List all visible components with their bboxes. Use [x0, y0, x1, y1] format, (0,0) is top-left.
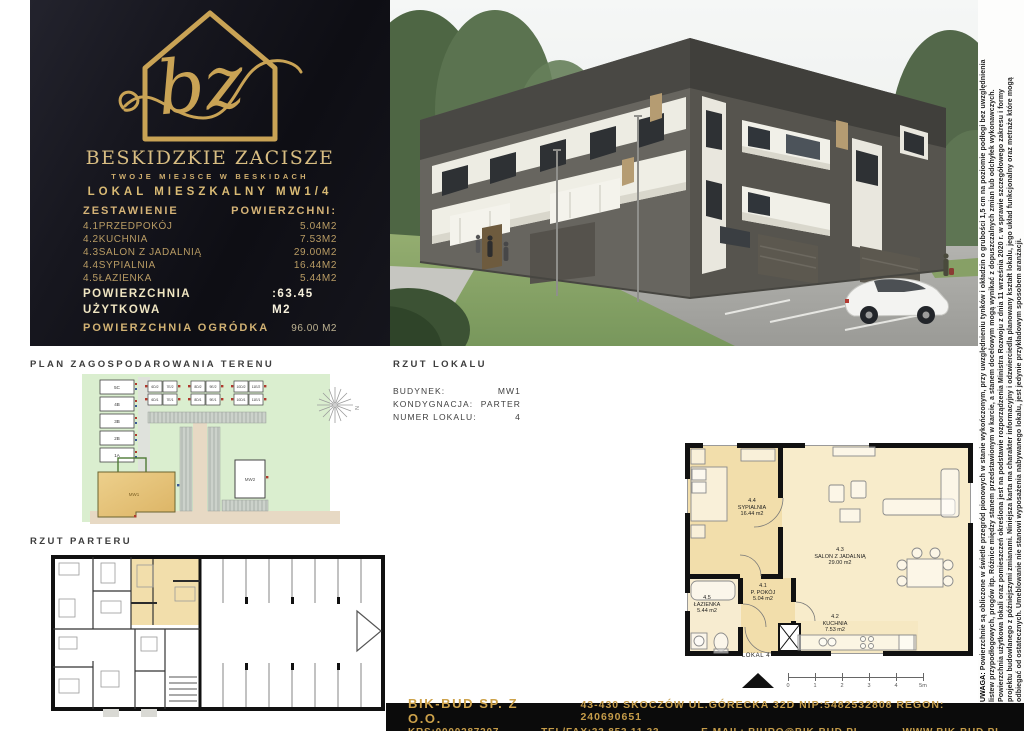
company-email: E-MAIL: BIURO@BIK-BUD.PL: [701, 727, 861, 731]
total-area-label: POWIERZCHNIA UŻYTKOWA: [83, 286, 272, 318]
svg-text:7E/2: 7E/2: [167, 385, 174, 389]
field-value: 4: [515, 411, 521, 424]
svg-text:11E/1: 11E/1: [252, 398, 261, 402]
garden-area-row: POWIERZCHNIA OGRÓDKA 96.00 M2: [83, 322, 337, 334]
plan-room-label-kitchen: 4.2KUCHNIA7.53 m2: [823, 614, 848, 634]
unit-title: LOKAL MIESZKALNY MW1/4: [30, 186, 390, 198]
ground-floor-plan-drawing: [45, 551, 390, 731]
brand-name: BESKIDZKIE ZACISZE: [30, 147, 390, 169]
room-area: 7.53M2: [300, 233, 337, 246]
plan-room-label-bathroom: 4.5ŁAZIENKA5.44 m2: [694, 595, 721, 615]
scale-tick: 2: [840, 683, 843, 689]
disclaimer-strip: UWAGA: Powierzchnie są obliczone w świet…: [978, 0, 1024, 703]
room-area: 5.44M2: [300, 272, 337, 285]
svg-text:6D/2: 6D/2: [151, 385, 158, 389]
svg-text:N: N: [353, 406, 359, 410]
plan-room-label-bedroom: 4.4SYPIALNIA16.44 m2: [738, 498, 766, 518]
svg-text:3B: 3B: [114, 419, 120, 424]
area-table-header: ZESTAWIENIE POWIERZCHNI:: [83, 205, 337, 217]
north-arrow-icon: [742, 673, 774, 688]
disclaimer-line: Powierzchnie są obliczone w świetle prze…: [980, 59, 987, 670]
scale-tick: 0: [786, 683, 789, 689]
brand-tagline: TWOJE MIEJSCE W BESKIDACH: [30, 172, 390, 181]
room-label: 4.2KUCHNIA: [83, 233, 148, 246]
company-name: BIK-BUD SP. Z O.O.: [408, 696, 554, 726]
disclaimer-line: odbiegać od ostatecznych. Umeblowanie ni…: [1015, 2, 1024, 702]
svg-text:MW1: MW1: [129, 492, 140, 497]
svg-text:9E/1: 9E/1: [210, 398, 217, 402]
disclaimer-text: UWAGA: Powierzchnie są obliczone w świet…: [979, 2, 1024, 702]
room-label: 4.1PRZEDPOKÓJ: [83, 220, 173, 233]
svg-text:4B: 4B: [114, 402, 120, 407]
plan-room-label-hall: 4.1P. POKÓJ5.04 m2: [751, 583, 776, 603]
area-header-left: ZESTAWIENIE: [83, 205, 179, 217]
disclaimer-line: projektu budowlanego z późniejszymi zmia…: [1006, 2, 1015, 702]
plan-room-label-salon: 4.3SALON Z JADALNIĄ29.00 m2: [814, 547, 865, 567]
svg-text:2B: 2B: [114, 436, 120, 441]
company-phone: TEL/FAX:33 853 11 33: [541, 727, 659, 731]
brand-logo: bz: [30, 6, 390, 151]
site-houses-left: 5C 4B 3B 2B 1A: [100, 380, 137, 462]
svg-text:10D/2: 10D/2: [236, 385, 245, 389]
footer-contact-bar: BIK-BUD SP. Z O.O. 43-430 SKOCZÓW UL.GÓR…: [386, 703, 1024, 731]
total-area-row: POWIERZCHNIA UŻYTKOWA :63.45 M2: [83, 286, 337, 318]
site-road-vertical: [193, 420, 207, 522]
company-website: WWW.BIK-BUD.PL: [902, 727, 1002, 731]
site-building-mw2: MW2: [235, 460, 268, 498]
field-value: PARTER: [481, 398, 521, 411]
company-krs: KRS:0000287207: [408, 727, 499, 731]
room-label: 4.5ŁAZIENKA: [83, 272, 152, 285]
svg-text:10D/1: 10D/1: [236, 398, 245, 402]
svg-text:9E/2: 9E/2: [210, 385, 217, 389]
area-header-right: POWIERZCHNI:: [231, 205, 337, 217]
room-area: 5.04M2: [300, 220, 337, 233]
total-area-value: :63.45 M2: [272, 286, 337, 318]
field-label: BUDYNEK:: [393, 385, 445, 398]
room-area: 16.44M2: [294, 259, 337, 272]
property-sheet-page: bz BESKIDZKIE ZACISZE TWOJE MIEJSCE W BE…: [0, 0, 1024, 731]
company-address: 43-430 SKOCZÓW UL.GÓRECKA 32D NIP:548253…: [580, 699, 1002, 723]
building-render-photo: [390, 0, 978, 346]
field-row: BUDYNEK:MW1: [393, 385, 521, 398]
site-plan-title: PLAN ZAGOSPODAROWANIA TERENU: [30, 359, 274, 370]
scale-tick: 3: [867, 683, 870, 689]
apartment-floor-plan: 4.4SYPIALNIA16.44 m2 4.3SALON Z JADALNIĄ…: [683, 441, 975, 665]
disclaimer-line: listew przypodłogowych, progów itp. Różn…: [988, 2, 997, 702]
field-label: NUMER LOKALU:: [393, 411, 477, 424]
area-table: ZESTAWIENIE POWIERZCHNI: 4.1PRZEDPOKÓJ 5…: [83, 205, 337, 318]
unit-fields: BUDYNEK:MW1 KONDYGNACJA:PARTER NUMER LOK…: [393, 385, 521, 424]
scale-tick: 4: [894, 683, 897, 689]
scale-tick: 5m: [919, 683, 927, 689]
garden-area-value: 96.00 M2: [291, 323, 337, 334]
garden-area-label: POWIERZCHNIA OGRÓDKA: [83, 322, 269, 334]
field-value: MW1: [498, 385, 521, 398]
brand-panel: bz BESKIDZKIE ZACISZE TWOJE MIEJSCE W BE…: [30, 0, 390, 346]
svg-text:7E/1: 7E/1: [167, 398, 174, 402]
scale-tick: 1: [813, 683, 816, 689]
table-row: 4.4SYPIALNIA 16.44M2: [83, 259, 337, 272]
field-row: NUMER LOKALU:4: [393, 411, 521, 424]
house-monogram-icon: bz: [117, 6, 303, 146]
ground-floor-title: RZUT PARTERU: [30, 536, 132, 547]
room-label: 4.4SYPIALNIA: [83, 259, 156, 272]
table-row: 4.5ŁAZIENKA 5.44M2: [83, 272, 337, 285]
room-label: 4.3SALON Z JADALNIĄ: [83, 246, 202, 259]
svg-text:8D/1: 8D/1: [194, 398, 201, 402]
scale-bar: 0 1 2 3 4 5m: [788, 672, 924, 690]
svg-text:MW2: MW2: [245, 477, 256, 482]
svg-text:6D/1: 6D/1: [151, 398, 158, 402]
svg-text:5C: 5C: [114, 385, 121, 390]
room-area: 29.00M2: [294, 246, 337, 259]
field-row: KONDYGNACJA:PARTER: [393, 398, 521, 411]
svg-text:11E/2: 11E/2: [252, 385, 261, 389]
table-row: 4.3SALON Z JADALNIĄ 29.00M2: [83, 246, 337, 259]
svg-text:8D/2: 8D/2: [194, 385, 201, 389]
svg-text:1A: 1A: [114, 453, 120, 458]
table-row: 4.1PRZEDPOKÓJ 5.04M2: [83, 220, 337, 233]
site-plan-drawing: 5C 4B 3B 2B 1A 6D/2 7E/2 6D/1 7E/1 8D/2 …: [60, 372, 370, 540]
table-row: 4.2KUCHNIA 7.53M2: [83, 233, 337, 246]
field-label: KONDYGNACJA:: [393, 398, 473, 411]
disclaimer-line: Powierzchnia użytkowa lokali oraz pomies…: [997, 2, 1006, 702]
unit-number-label: LOKAL 4: [726, 653, 786, 659]
unit-sheet-title: RZUT LOKALU: [393, 359, 487, 370]
